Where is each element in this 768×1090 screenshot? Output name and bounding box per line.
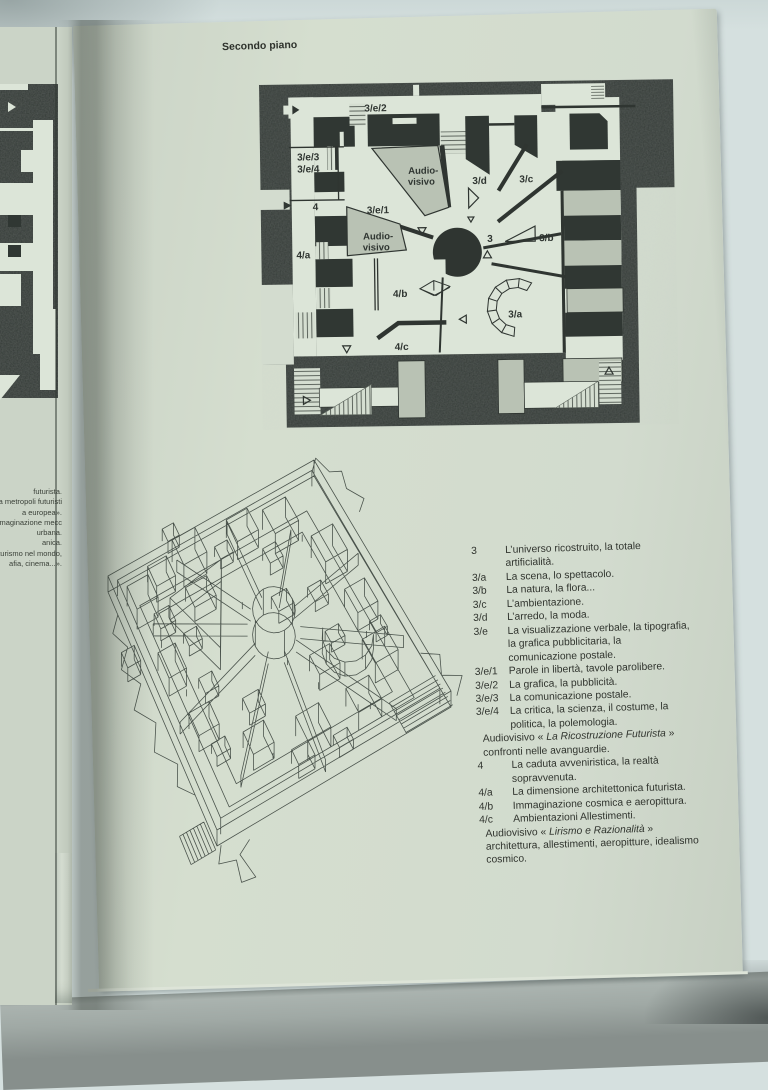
- svg-text:3/a: 3/a: [508, 309, 522, 320]
- svg-text:3/e/1: 3/e/1: [367, 205, 390, 216]
- svg-text:3: 3: [487, 234, 493, 245]
- svg-text:Audio-: Audio-: [363, 231, 393, 242]
- svg-text:Audio-: Audio-: [408, 165, 438, 176]
- svg-text:4/c: 4/c: [395, 342, 409, 353]
- svg-text:visivo: visivo: [408, 177, 435, 188]
- svg-text:3/c: 3/c: [519, 174, 533, 185]
- svg-text:4: 4: [313, 202, 319, 213]
- svg-text:3/b: 3/b: [539, 233, 554, 244]
- svg-text:4/b: 4/b: [393, 289, 408, 300]
- svg-text:3/d: 3/d: [472, 176, 487, 187]
- svg-text:visivo: visivo: [363, 242, 390, 253]
- svg-text:3/e/3: 3/e/3: [297, 152, 320, 163]
- svg-text:3/e/2: 3/e/2: [364, 103, 387, 114]
- svg-text:4/a: 4/a: [296, 250, 310, 261]
- svg-text:3/e/4: 3/e/4: [297, 164, 320, 175]
